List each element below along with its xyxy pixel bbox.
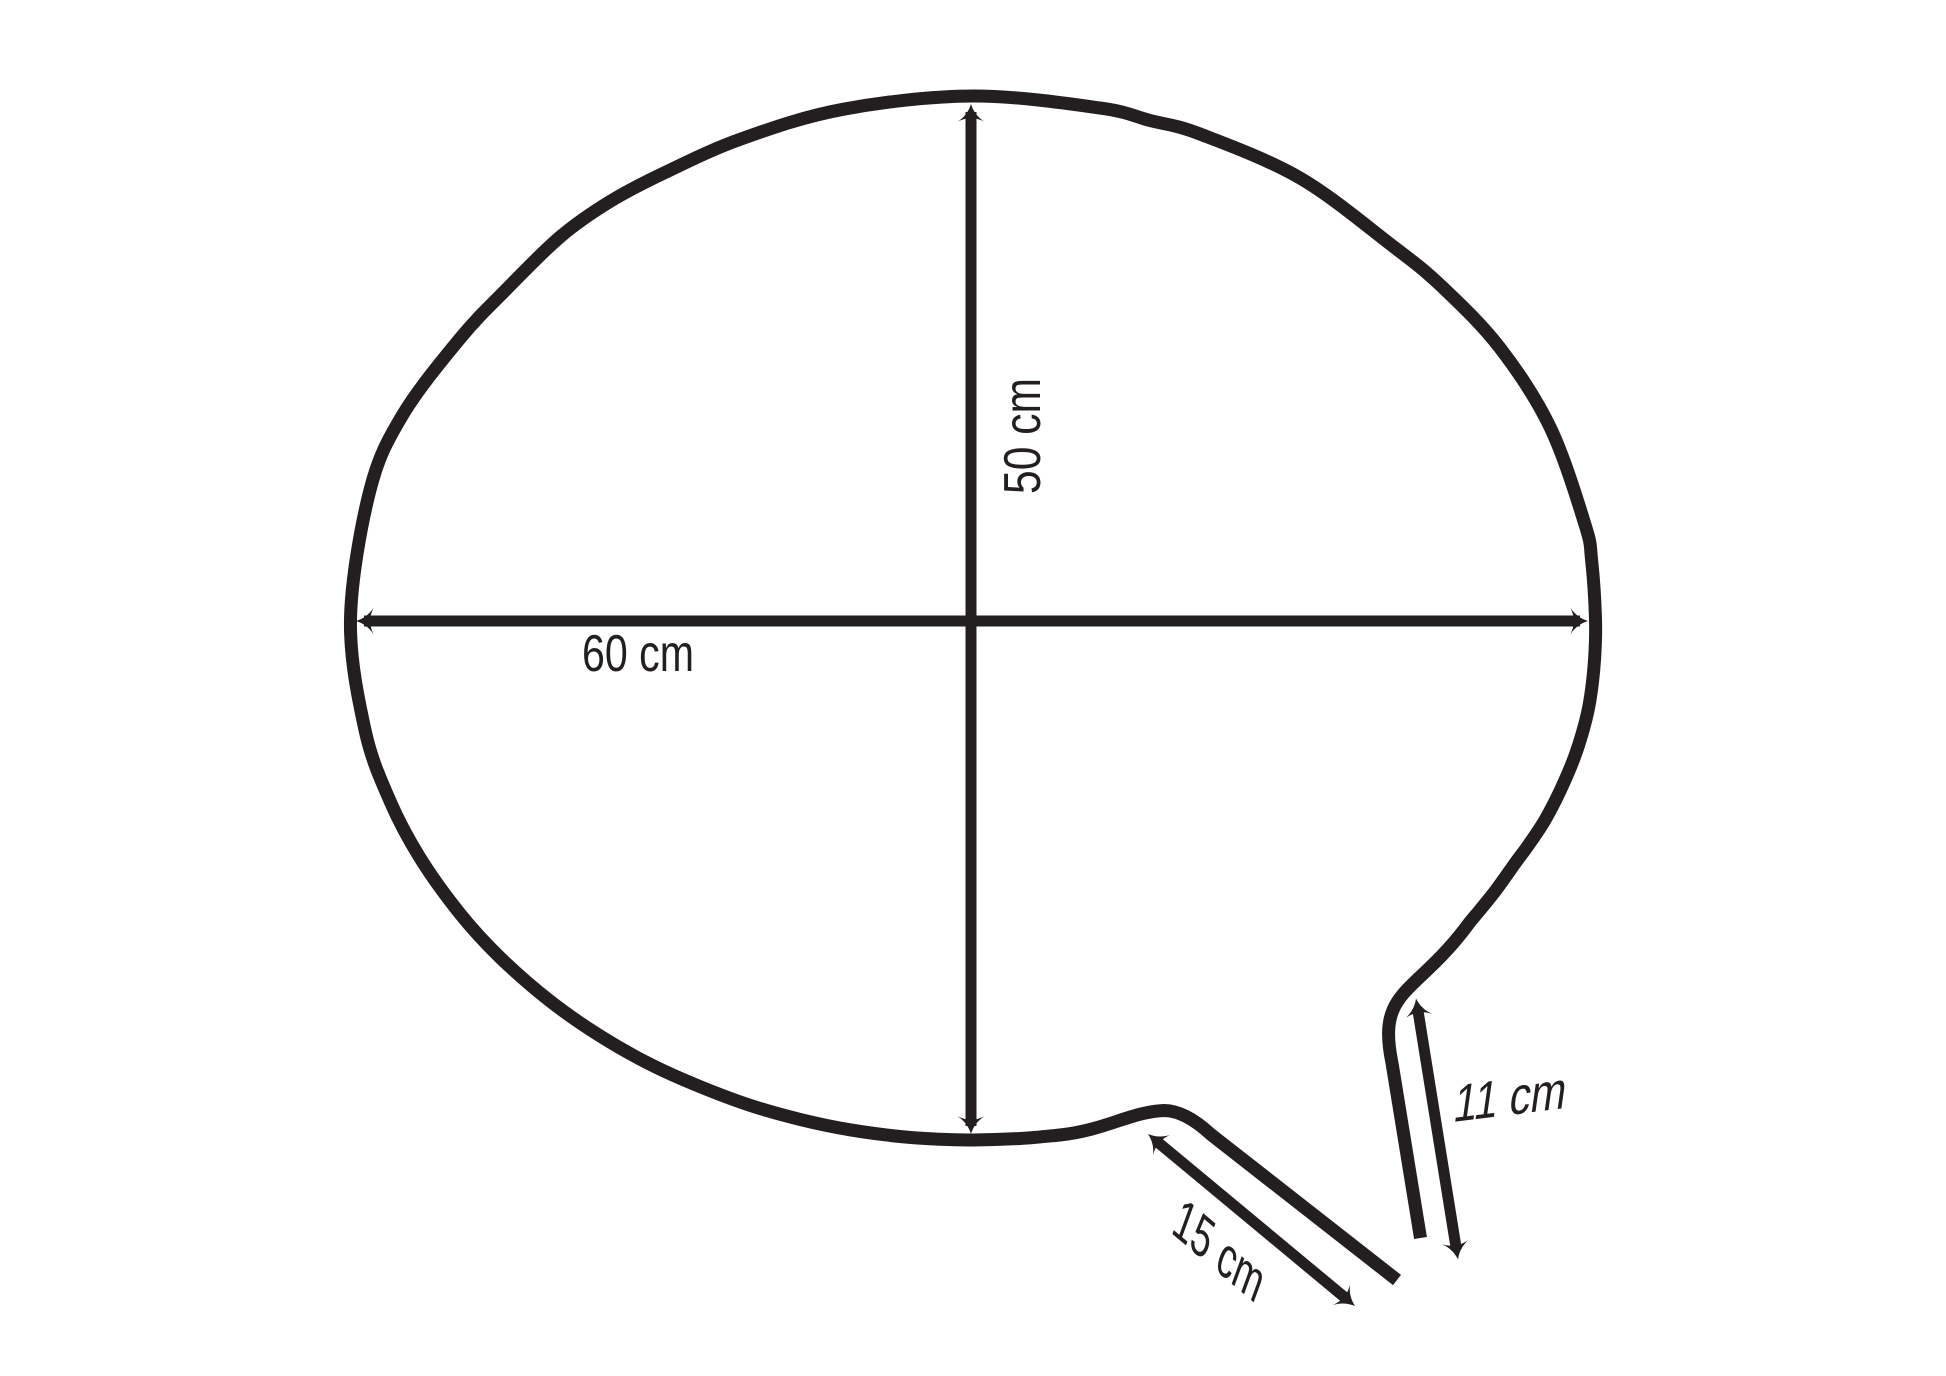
svg-text:11 cm: 11 cm — [1450, 1061, 1571, 1134]
svg-text:15 cm: 15 cm — [1166, 1186, 1273, 1316]
svg-text:50 cm: 50 cm — [994, 378, 1052, 494]
svg-text:60 cm: 60 cm — [582, 625, 694, 683]
